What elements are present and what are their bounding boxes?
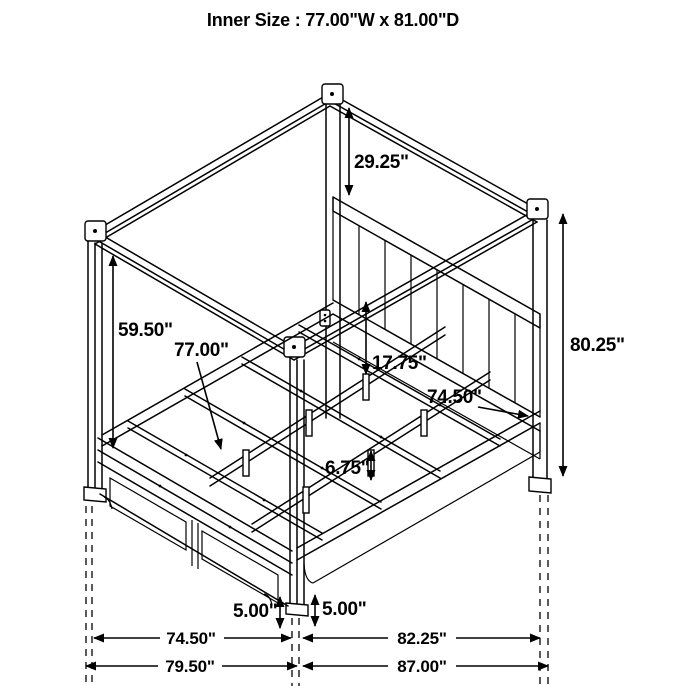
dim-depth-outer-label: 87.00" <box>397 657 446 676</box>
dim-rail-height-label: 17.75" <box>372 353 427 374</box>
dim-clearance-left-label: 5.00" <box>233 601 278 622</box>
dim-left-post-label: 59.50" <box>118 320 173 341</box>
footboard <box>98 438 292 606</box>
dim-width-inner-label: 74.50" <box>166 629 215 648</box>
bed-drawing-svg: Inner Size : 77.00"W x 81.00"D <box>0 0 700 700</box>
dim-post-height: 80.25" <box>563 214 625 476</box>
dim-post-height-label: 80.25" <box>570 335 625 356</box>
dim-width-outer: 79.50" <box>86 657 297 676</box>
canopy-frame <box>85 84 548 360</box>
diagram-title: Inner Size : 77.00"W x 81.00"D <box>207 10 459 30</box>
dim-clearance-right: 5.00" <box>315 595 367 626</box>
posts <box>84 104 551 616</box>
dim-width-outer-label: 79.50" <box>165 657 214 676</box>
dim-depth-outer: 87.00" <box>303 657 548 676</box>
headboard <box>320 197 540 459</box>
dim-leg-height-label: 6.75" <box>325 458 370 479</box>
left-post-foot <box>84 487 106 502</box>
dim-width-inner: 74.50" <box>94 629 291 648</box>
dim-clearance-left: 5.00" <box>233 597 280 628</box>
support-legs <box>243 374 427 513</box>
dim-clearance-right-label: 5.00" <box>322 599 367 620</box>
center-support-rails <box>210 327 490 532</box>
dim-depth-inner-label: 82.25" <box>397 629 446 648</box>
dim-canopy-drop-label: 29.25" <box>354 152 409 173</box>
dim-headboard-rail-label: 74.50" <box>427 387 482 408</box>
dim-slat-length: 77.00" <box>174 340 229 449</box>
right-post-foot <box>529 477 551 493</box>
canopy-bed-dimension-diagram: Inner Size : 77.00"W x 81.00"D <box>0 0 700 700</box>
front-post-foot <box>286 603 308 616</box>
dim-depth-inner: 82.25" <box>303 629 540 648</box>
projection-lines <box>86 495 548 686</box>
dim-slat-length-label: 77.00" <box>174 340 229 361</box>
dim-leg-height: 6.75" <box>325 451 371 480</box>
